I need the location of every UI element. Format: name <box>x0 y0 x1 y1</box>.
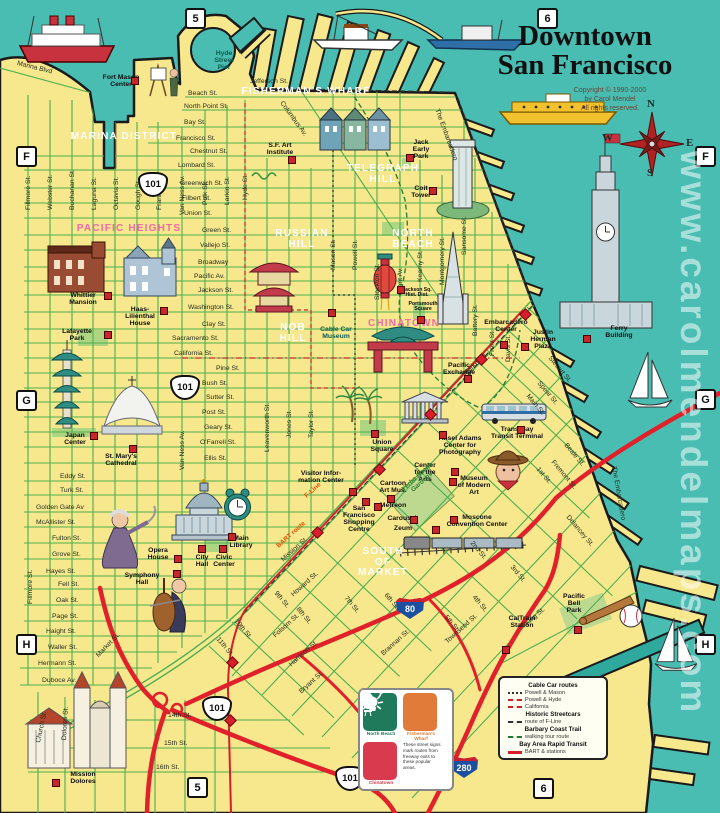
aquatic-park-cove <box>191 28 235 72</box>
downtown-san-francisco-map: NWESMarina BlvdJefferson St.Beach St.Nor… <box>0 0 720 813</box>
freeway-exit-sign <box>364 693 398 715</box>
map-canvas <box>0 0 720 813</box>
clock-icon <box>225 489 251 520</box>
whittier-mansion <box>48 242 105 292</box>
victorian-houses <box>320 108 390 150</box>
watermark: www.carolmendelmaps.com <box>672 150 714 715</box>
